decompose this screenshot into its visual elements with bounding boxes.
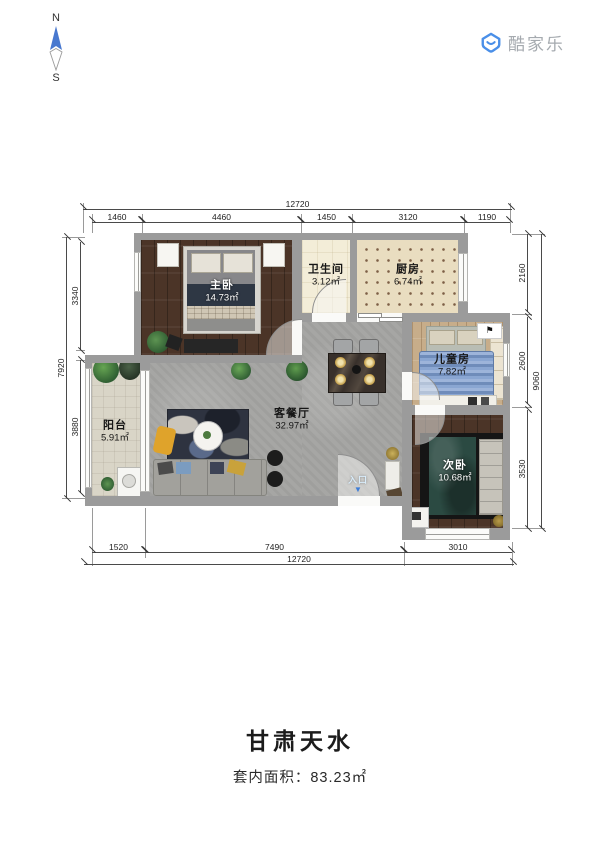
desk-item [468, 397, 477, 405]
dimension-top-segment: 1450 [301, 222, 352, 223]
dining-chair [333, 339, 353, 354]
room-label-kitchen: 厨房 6.74㎡ [394, 264, 422, 289]
door-opening [415, 405, 445, 415]
sliding-door-leaf [379, 317, 403, 322]
window [140, 370, 150, 492]
wall [445, 405, 510, 415]
room-label-second: 次卧 10.68㎡ [438, 460, 471, 485]
extension-line [301, 214, 302, 233]
dining-chair [359, 339, 379, 354]
extension-line [352, 214, 353, 233]
extension-line [512, 407, 532, 408]
nightstand [157, 243, 179, 267]
wall [503, 415, 510, 540]
side-table [267, 450, 283, 466]
dimension-right-segment: 2160 [527, 234, 528, 312]
chair-seat [412, 512, 421, 520]
wall [402, 405, 415, 415]
wall [292, 240, 302, 320]
dimension-top-segment: 1190 [464, 222, 510, 223]
dimension-bottom-segment: 3010 [404, 552, 512, 553]
door-swing-arc [415, 415, 445, 445]
window [85, 368, 92, 488]
dimension-right-segment: 2600 [527, 317, 528, 404]
coffee-table-decor [203, 431, 211, 439]
side-table [267, 471, 283, 487]
wall [380, 496, 412, 506]
extension-line [92, 214, 93, 233]
washing-machine-drum [122, 474, 136, 488]
extension-line [404, 542, 405, 566]
wall [402, 313, 510, 322]
bed-blanket [187, 306, 255, 319]
nightstand [263, 243, 285, 267]
dimension-right-total: 9060 [541, 234, 542, 528]
compass-north-label: N [52, 12, 60, 24]
entrance-arrow-icon: ▼ [349, 486, 367, 494]
dimension-top-segment: 1460 [92, 222, 142, 223]
compass: N S [42, 12, 70, 84]
place-setting [364, 357, 375, 368]
entrance-door-opening [338, 496, 380, 506]
dimension-bottom-total: 12720 [84, 564, 514, 565]
place-setting [364, 374, 375, 385]
room-label-balcony: 阳台 5.91㎡ [101, 420, 129, 445]
dimension-left-total: 7920 [66, 237, 67, 498]
window [425, 528, 490, 540]
dimension-right-segment: 3530 [527, 410, 528, 528]
interior-area-label: 套内面积：83.23㎡ [0, 766, 600, 787]
door-opening [402, 372, 412, 400]
pillow [429, 330, 455, 345]
kujiale-shield-icon [480, 32, 502, 54]
dimension-bottom-segment: 1520 [92, 552, 145, 553]
pillow [223, 253, 253, 273]
wall [85, 496, 338, 506]
dining-chair [333, 391, 353, 406]
extension-line [92, 508, 93, 566]
dimension-left-segment: 3880 [80, 360, 81, 493]
wall [402, 322, 412, 372]
sofa-pillow [176, 462, 191, 474]
plant [231, 361, 251, 380]
sofa-pillow [210, 462, 224, 474]
door-swing-arc [266, 319, 302, 355]
table-centerpiece [352, 365, 361, 374]
window [134, 252, 141, 292]
bed-foot [187, 319, 255, 331]
wall [302, 313, 312, 322]
brand-name: 酷家乐 [508, 30, 565, 55]
dimension-top-total: 12720 [83, 209, 512, 210]
place-setting [335, 374, 346, 385]
compass-south-label: S [52, 72, 59, 84]
page-title: 甘肃天水 [0, 722, 600, 756]
flag-decor-icon: ⚑ [477, 323, 502, 339]
dimension-top-segment: 4460 [142, 222, 301, 223]
room-label-kids: 儿童房 7.82㎡ [434, 354, 470, 379]
dimension-left-segment: 3340 [80, 242, 81, 350]
wall [350, 240, 357, 313]
pillow [191, 253, 221, 273]
wall [141, 233, 468, 240]
brand-logo: 酷家乐 [480, 30, 565, 55]
plant [386, 447, 399, 460]
wall [85, 355, 302, 363]
floor-plan-page: N S 酷家乐 [0, 0, 600, 848]
window [503, 343, 510, 377]
wall [346, 313, 357, 322]
extension-line [464, 214, 465, 233]
dimension-bottom-segment: 7490 [145, 552, 404, 553]
compass-needle-icon [46, 25, 66, 71]
shoe-cabinet [385, 461, 400, 490]
dining-chair [359, 391, 379, 406]
dimension-top-segment: 3120 [352, 222, 464, 223]
room-label-living: 客餐厅 32.97㎡ [274, 408, 310, 433]
desk-item [481, 397, 489, 405]
sofa-pillow [157, 461, 174, 475]
plant [286, 360, 308, 381]
room-label-bath: 卫生间 3.12㎡ [308, 264, 344, 289]
plant [101, 477, 114, 491]
extension-line [142, 214, 143, 233]
place-setting [335, 357, 346, 368]
window [458, 253, 468, 302]
door-opening [312, 313, 346, 322]
tv-console [184, 339, 238, 353]
room-label-master: 主卧 14.73㎡ [205, 280, 238, 305]
second-bed-headboard [479, 439, 503, 515]
